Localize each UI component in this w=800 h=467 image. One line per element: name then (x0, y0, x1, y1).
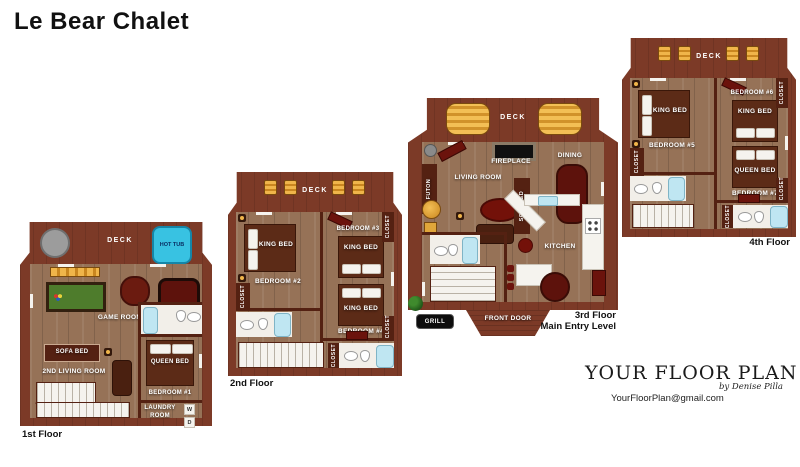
pillow (342, 264, 361, 274)
stairs (430, 266, 496, 302)
bedroom3-label: BEDROOM #3 (326, 226, 390, 234)
kitchen-label: KITCHEN (528, 243, 592, 251)
living-room-label: LIVING ROOM (448, 174, 508, 182)
window-mark (30, 294, 33, 308)
queen-bed-label: QUEEN BED (147, 359, 193, 367)
wall (138, 400, 202, 403)
closet-label: CLOSET (240, 285, 246, 308)
pillow (342, 288, 361, 298)
futon-label: FUTON (426, 179, 433, 199)
closet: CLOSET (236, 283, 250, 311)
floor2-interior: KING BED BEDROOM #2 CLOSET BEDROOM #3 KI… (236, 212, 394, 368)
stairs (238, 342, 324, 368)
floor-plan-2: DECK KING BED BEDROOM #2 CLOSET BEDRO (228, 172, 402, 376)
bedroom6-label: BEDROOM #6 (720, 90, 784, 98)
lamp-icon (238, 274, 246, 282)
king-bed: KING BED (732, 100, 778, 142)
bar-counter (50, 267, 100, 277)
pillow (362, 264, 381, 274)
kitchen-counter (582, 204, 604, 270)
deck-chair-icon (746, 46, 759, 61)
queen-bed: QUEEN BED (732, 146, 778, 188)
floor-plan-sheet: Le Bear Chalet DECK HOT TUB GAME ROOM (0, 0, 800, 467)
pillow (642, 116, 652, 136)
window-mark (391, 272, 394, 286)
closet: CLOSET (776, 78, 788, 108)
closet: CLOSET (776, 178, 788, 200)
stairs (36, 382, 96, 404)
bench (738, 194, 760, 203)
logo-brand: YOUR FLOOR PLAN (585, 362, 797, 384)
logo-email: YourFloorPlan@gmail.com (585, 393, 797, 404)
closet: CLOSET (630, 148, 644, 176)
billiard-balls-icon (53, 293, 63, 301)
lamp-icon (632, 80, 640, 88)
floor4-name: 4th Floor (749, 237, 790, 248)
hot-tub-label: HOT TUB (159, 242, 185, 249)
king-bed: KING BED (638, 90, 690, 138)
round-table (540, 272, 570, 302)
grill-label: GRILL (425, 319, 446, 325)
floor-plan-4: DECK KING BED BEDROOM #5 CLOSET BEDRO (622, 38, 796, 245)
sink-icon (434, 246, 448, 256)
deck-chair-icon (678, 46, 691, 61)
bathtub-icon (376, 345, 394, 368)
king-bed: KING BED (338, 284, 384, 326)
lamp-icon (456, 212, 464, 220)
plant-icon (408, 296, 423, 311)
window-mark (422, 282, 425, 296)
king-bed-label: KING BED (257, 241, 295, 249)
floor-plan-1: DECK HOT TUB GAME ROOM SOFA BE (20, 222, 212, 426)
sink-icon (240, 320, 254, 330)
armchair-icon (422, 200, 441, 219)
bench (346, 331, 368, 340)
stove-icon (585, 218, 601, 234)
washer-unit: W (184, 404, 195, 415)
sink-icon (344, 351, 358, 361)
deck-chair-icon (658, 46, 671, 61)
sink-icon (187, 312, 201, 322)
lounger-icon (446, 103, 490, 135)
bathtub-icon (770, 206, 788, 228)
closet-label: CLOSET (725, 205, 731, 228)
laundry-room-label: LAUNDRY ROOM (138, 405, 182, 420)
deck-chair-icon (332, 180, 345, 195)
second-living-room-label: 2ND LIVING ROOM (38, 368, 110, 376)
floor-plan-3: DECK FIREPLACE DINING FUTON LIVING ROOM … (408, 98, 618, 338)
fireplace-label: FIREPLACE (474, 158, 548, 166)
lamp-icon (632, 140, 640, 148)
pillow (248, 250, 258, 270)
king-bed-label: KING BED (733, 108, 777, 116)
dining-label: DINING (540, 152, 600, 160)
chair (592, 270, 606, 296)
deck-chair-icon (352, 180, 365, 195)
sink-icon (738, 212, 752, 222)
deck-chair-icon (284, 180, 297, 195)
lamp-icon (104, 348, 112, 356)
bedroom2-label: BEDROOM #2 (248, 278, 308, 286)
floor1-deck-label: DECK (80, 237, 160, 244)
closet: CLOSET (382, 316, 394, 338)
window-mark (650, 78, 666, 81)
pillow (756, 128, 775, 138)
floor2-name: 2nd Floor (230, 378, 273, 389)
lounger-icon (538, 103, 582, 135)
floor3-name-line2: Main Entry Level (506, 321, 616, 332)
pillow (736, 150, 755, 160)
closet: CLOSET (382, 212, 394, 242)
wall (714, 78, 717, 229)
dryer-unit: D (184, 417, 195, 428)
closet-label: CLOSET (385, 315, 391, 338)
floor3-name: 3rd Floor Main Entry Level (506, 310, 616, 333)
sofa-bed-label: SOFA BED (56, 349, 89, 357)
stool (507, 265, 514, 272)
deck-chair-icon (264, 180, 277, 195)
king-bed-label: KING BED (339, 305, 383, 313)
closet-label: CLOSET (779, 177, 785, 200)
closet: CLOSET (722, 205, 733, 228)
queen-bed-label: QUEEN BED (733, 167, 777, 175)
floor3-interior: FIREPLACE DINING FUTON LIVING ROOM SOFA … (422, 142, 604, 302)
designer-logo: YOUR FLOOR PLAN by Denise Pilla YourFloo… (585, 362, 797, 404)
stairs (36, 402, 130, 418)
bathtub-icon (668, 177, 685, 201)
sofa (112, 360, 132, 396)
bathtub-icon (274, 313, 291, 337)
pillow (172, 344, 193, 354)
window-mark (256, 212, 272, 215)
pool-table (46, 282, 106, 312)
floor4-interior: KING BED BEDROOM #5 CLOSET BEDROOM #6 KI… (630, 78, 788, 229)
ceiling-fan-icon (424, 144, 437, 157)
stool (507, 274, 514, 281)
bedroom5-label: BEDROOM #5 (642, 142, 702, 150)
wall (138, 334, 202, 337)
floor1-name: 1st Floor (22, 429, 62, 440)
window-mark (601, 182, 604, 196)
dryer-label: D (185, 420, 194, 426)
window-mark (150, 264, 166, 267)
floor1-interior: GAME ROOM SOFA BED 2ND LIVING ROOM QUEEN… (30, 264, 202, 418)
closet-label: CLOSET (634, 150, 640, 173)
sink-icon (634, 184, 648, 194)
stairs (632, 204, 694, 228)
washer-label: W (185, 407, 194, 413)
pillow (150, 344, 171, 354)
closet: CLOSET (328, 343, 339, 368)
king-bed: KING BED (244, 224, 296, 272)
king-bed-label: KING BED (339, 244, 383, 252)
bathtub-icon (143, 307, 158, 334)
closet-label: CLOSET (331, 344, 337, 367)
closet-label: CLOSET (385, 215, 391, 238)
patio-table-icon (40, 228, 70, 258)
queen-bed: QUEEN BED (146, 340, 194, 386)
sofa-bed: SOFA BED (44, 344, 100, 362)
floor3-name-line1: 3rd Floor (506, 310, 616, 321)
closet-label: CLOSET (779, 81, 785, 104)
pillow (362, 288, 381, 298)
lamp-icon (238, 214, 246, 222)
king-bed-label: KING BED (651, 107, 689, 115)
window-mark (785, 136, 788, 150)
king-bed: KING BED (338, 236, 384, 278)
bedroom1-label: BEDROOM #1 (140, 390, 200, 398)
pillow (736, 128, 755, 138)
bathtub-icon (462, 237, 478, 264)
kitchen-sink-icon (538, 196, 558, 206)
hot-tub: HOT TUB (152, 226, 192, 264)
page-title: Le Bear Chalet (14, 8, 189, 36)
grill-badge: GRILL (416, 314, 454, 329)
deck-chair-icon (726, 46, 739, 61)
window-mark (199, 354, 202, 368)
pillow (756, 150, 775, 160)
stool (507, 283, 514, 290)
